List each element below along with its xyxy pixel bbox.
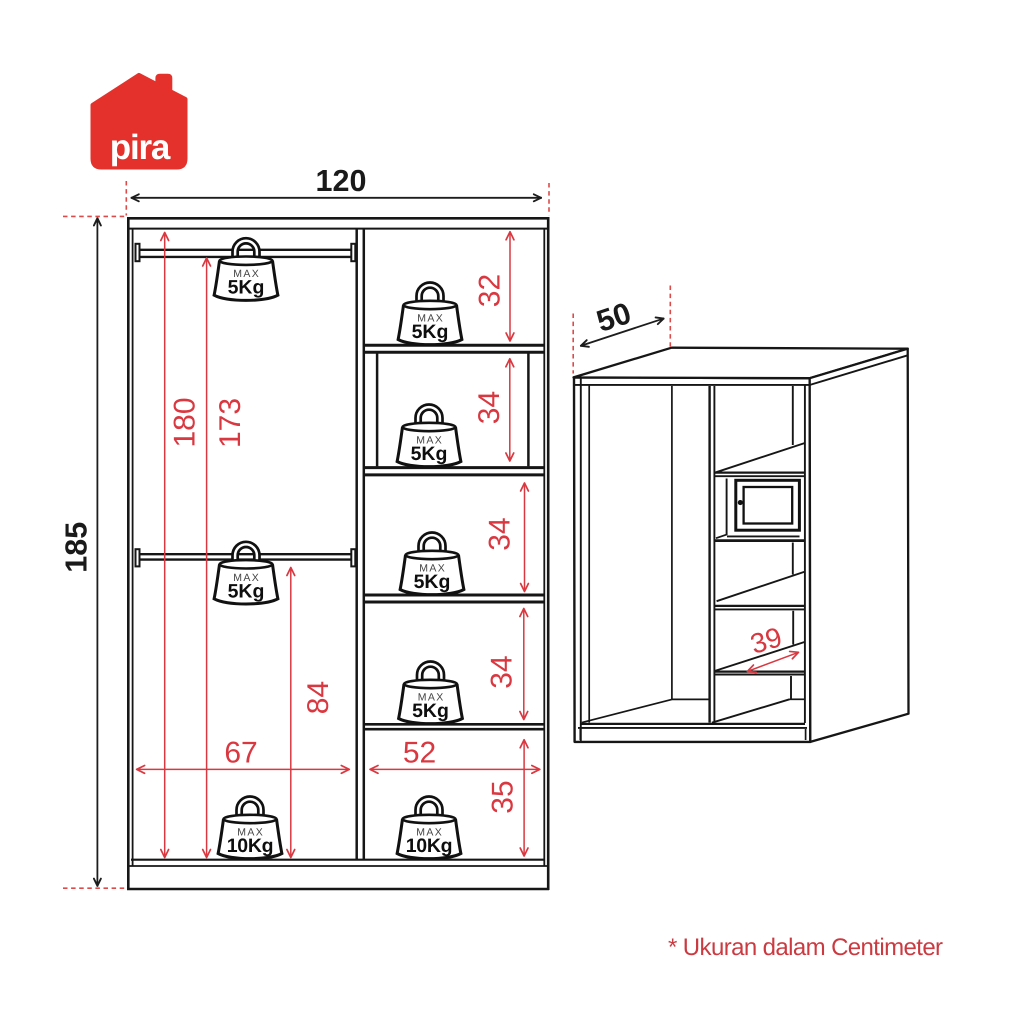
svg-text:120: 120 <box>316 164 367 198</box>
svg-text:35: 35 <box>487 780 520 813</box>
svg-text:52: 52 <box>403 736 436 769</box>
svg-text:185: 185 <box>60 522 94 573</box>
svg-text:180: 180 <box>169 397 202 447</box>
svg-text:173: 173 <box>214 398 247 448</box>
svg-text:32: 32 <box>474 274 507 307</box>
svg-text:34: 34 <box>486 655 519 688</box>
svg-text:34: 34 <box>484 517 517 550</box>
svg-text:67: 67 <box>224 736 257 769</box>
svg-text:pira: pira <box>110 128 171 167</box>
svg-text:84: 84 <box>302 681 335 714</box>
svg-text:34: 34 <box>473 391 506 424</box>
svg-text:* Ukuran dalam Centimeter: * Ukuran dalam Centimeter <box>668 934 943 961</box>
